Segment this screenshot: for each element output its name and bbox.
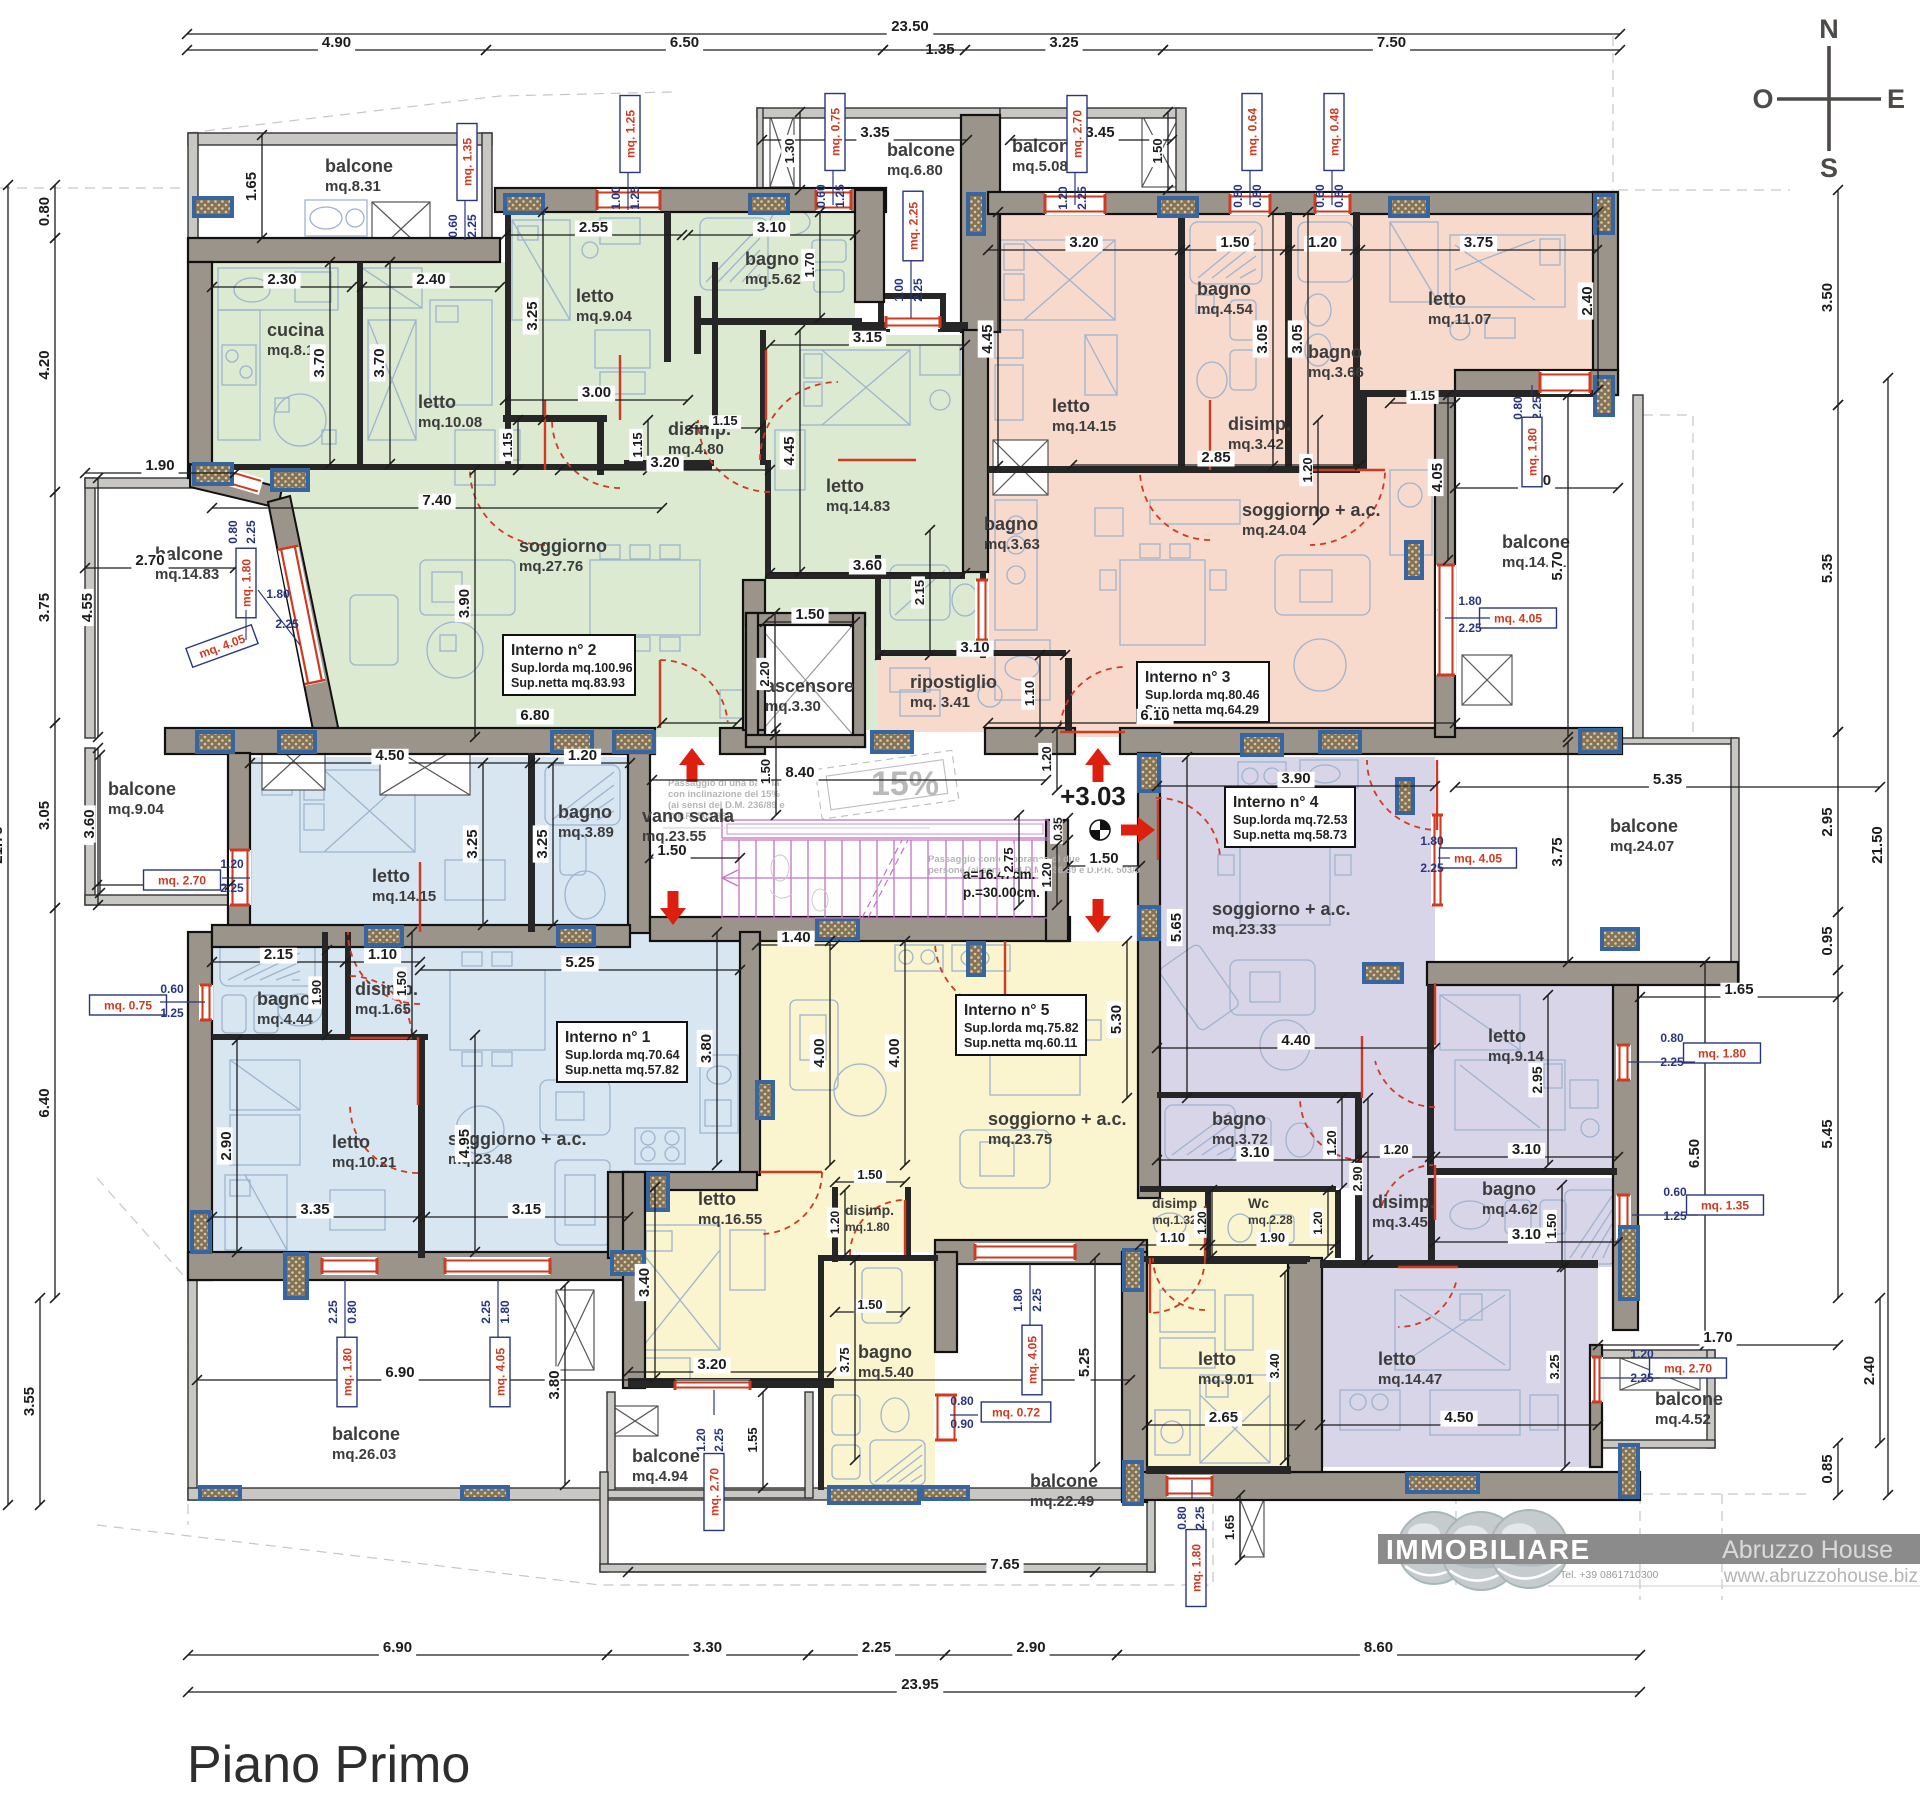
svg-text:bagno: bagno <box>745 249 799 269</box>
svg-text:2.25: 2.25 <box>911 278 925 302</box>
svg-text:mq.11.07: mq.11.07 <box>1428 311 1491 328</box>
svg-text:1.20: 1.20 <box>694 1428 708 1452</box>
svg-text:1.50: 1.50 <box>1220 234 1249 251</box>
svg-text:3.80: 3.80 <box>546 1370 563 1399</box>
svg-text:2.30: 2.30 <box>267 271 296 288</box>
svg-text:3.25: 3.25 <box>1547 1354 1562 1379</box>
svg-text:balcone: balcone <box>1655 1389 1723 1409</box>
svg-text:1.20: 1.20 <box>220 857 244 871</box>
svg-text:letto: letto <box>1428 289 1466 309</box>
svg-text:Sup.lorda mq.72.53: Sup.lorda mq.72.53 <box>1233 813 1348 827</box>
svg-text:mq.14.15: mq.14.15 <box>372 888 436 905</box>
svg-text:4.50: 4.50 <box>1444 1409 1473 1426</box>
svg-text:letto: letto <box>576 286 614 306</box>
svg-text:soggiorno + a.c.: soggiorno + a.c. <box>988 1109 1127 1129</box>
svg-text:3.75: 3.75 <box>1464 234 1493 251</box>
svg-text:bagno: bagno <box>257 989 311 1009</box>
svg-text:mq. 2.70: mq. 2.70 <box>1070 110 1084 158</box>
svg-text:1.20: 1.20 <box>1195 1211 1209 1235</box>
svg-text:letto: letto <box>1052 396 1090 416</box>
svg-text:6.50: 6.50 <box>670 34 699 51</box>
svg-text:mq.26.03: mq.26.03 <box>332 1446 396 1463</box>
svg-text:3.10: 3.10 <box>757 219 786 236</box>
svg-text:2.25: 2.25 <box>1458 621 1482 635</box>
svg-text:Interno n° 2: Interno n° 2 <box>511 642 596 659</box>
svg-text:4.45: 4.45 <box>781 436 798 465</box>
svg-text:mq. 2.70: mq. 2.70 <box>707 1468 721 1516</box>
svg-text:letto: letto <box>1488 1026 1526 1046</box>
svg-text:Abruzzo House: Abruzzo House <box>1722 1536 1893 1564</box>
svg-text:mq. 1.80: mq. 1.80 <box>340 1348 354 1396</box>
svg-text:1.10: 1.10 <box>1022 681 1037 706</box>
svg-text:4.00: 4.00 <box>886 1038 903 1067</box>
svg-text:1.20: 1.20 <box>568 747 597 764</box>
svg-text:mq.5.40: mq.5.40 <box>858 1364 914 1381</box>
svg-text:mq.9.04: mq.9.04 <box>576 308 633 325</box>
svg-text:mq.4.94: mq.4.94 <box>632 1468 689 1485</box>
svg-text:IMMOBILIARE: IMMOBILIARE <box>1386 1534 1591 1565</box>
svg-text:disimp.: disimp. <box>1228 414 1291 434</box>
svg-text:1.50: 1.50 <box>657 842 686 859</box>
svg-text:mq.4.44: mq.4.44 <box>257 1011 314 1028</box>
svg-text:2.90: 2.90 <box>1350 1166 1365 1191</box>
svg-text:mq.3.30: mq.3.30 <box>765 698 821 715</box>
svg-text:E: E <box>1887 84 1905 114</box>
svg-text:3.60: 3.60 <box>81 809 98 838</box>
svg-text:Interno n° 1: Interno n° 1 <box>565 1029 651 1046</box>
svg-text:bagno: bagno <box>558 802 612 822</box>
svg-text:1.40: 1.40 <box>781 929 810 946</box>
svg-text:mq.23.75: mq.23.75 <box>988 1131 1052 1148</box>
svg-text:mq. 1.80: mq. 1.80 <box>239 559 253 607</box>
svg-text:1.90: 1.90 <box>145 457 174 474</box>
svg-text:2.25: 2.25 <box>1193 1506 1207 1530</box>
svg-text:mq.14.15: mq.14.15 <box>1052 418 1116 435</box>
svg-text:Sup.lorda mq.100.96: Sup.lorda mq.100.96 <box>511 661 633 675</box>
svg-text:2.25: 2.25 <box>712 1428 726 1452</box>
svg-text:0.80: 0.80 <box>1175 1506 1189 1530</box>
svg-text:2.75: 2.75 <box>1001 847 1016 872</box>
svg-text:3.10: 3.10 <box>1512 1141 1541 1158</box>
svg-text:2.25: 2.25 <box>1075 186 1089 210</box>
svg-text:3.70: 3.70 <box>371 348 388 377</box>
svg-text:1.20: 1.20 <box>1630 1347 1654 1361</box>
svg-text:1.50: 1.50 <box>1089 850 1118 867</box>
svg-text:3.75: 3.75 <box>36 593 53 622</box>
svg-text:1.15: 1.15 <box>712 413 737 428</box>
svg-text:balcone: balcone <box>108 779 176 799</box>
svg-text:2.65: 2.65 <box>1209 1409 1238 1426</box>
svg-text:mq.8.31: mq.8.31 <box>325 178 381 195</box>
svg-text:1.30: 1.30 <box>782 138 797 163</box>
svg-text:mq.6.80: mq.6.80 <box>887 162 943 179</box>
svg-text:mq.22.49: mq.22.49 <box>1030 1493 1094 1510</box>
svg-text:O: O <box>1752 84 1773 114</box>
svg-text:3.50: 3.50 <box>1819 283 1836 312</box>
svg-text:0.60: 0.60 <box>814 184 828 208</box>
svg-text:6.90: 6.90 <box>383 1639 412 1656</box>
svg-text:4.20: 4.20 <box>36 350 53 379</box>
svg-text:disimp.: disimp. <box>1372 1192 1435 1212</box>
svg-text:2.25: 2.25 <box>1420 861 1444 875</box>
svg-text:mq.1.80: mq.1.80 <box>845 1220 890 1234</box>
svg-text:2.25: 2.25 <box>326 1300 340 1324</box>
svg-text:1.80: 1.80 <box>1011 1288 1025 1312</box>
svg-text:mq. 1.80: mq. 1.80 <box>1698 1046 1746 1060</box>
svg-text:3.55: 3.55 <box>21 1387 38 1416</box>
svg-text:2.40: 2.40 <box>1579 286 1596 315</box>
svg-text:1.10: 1.10 <box>1160 1230 1185 1245</box>
svg-text:vano scala: vano scala <box>642 806 735 826</box>
svg-text:3.20: 3.20 <box>1069 234 1098 251</box>
svg-text:mq.4.52: mq.4.52 <box>1655 1411 1711 1428</box>
svg-text:1.15: 1.15 <box>500 432 515 457</box>
svg-text:balcone: balcone <box>632 1446 700 1466</box>
svg-text:1.65: 1.65 <box>243 172 260 201</box>
svg-text:0.80: 0.80 <box>1231 184 1245 208</box>
svg-text:Sup.netta mq.57.82: Sup.netta mq.57.82 <box>565 1063 679 1077</box>
svg-text:mq.4.62: mq.4.62 <box>1482 1201 1538 1218</box>
svg-text:1.50: 1.50 <box>1544 1213 1559 1238</box>
svg-text:mq. 0.75: mq. 0.75 <box>828 108 842 156</box>
svg-text:disimp: disimp <box>1152 1195 1197 1211</box>
svg-text:balcone: balcone <box>887 140 955 160</box>
svg-text:1.90: 1.90 <box>1260 1230 1285 1245</box>
svg-text:mq.5.08: mq.5.08 <box>1012 158 1068 175</box>
svg-text:6.10: 6.10 <box>1140 707 1169 724</box>
svg-text:letto: letto <box>698 1189 736 1209</box>
svg-text:3.60: 3.60 <box>853 557 882 574</box>
svg-text:1.80: 1.80 <box>498 1300 512 1324</box>
svg-text:2.90: 2.90 <box>218 1131 235 1160</box>
svg-text:bagno: bagno <box>1212 1109 1266 1129</box>
svg-text:mq.23.33: mq.23.33 <box>1212 921 1276 938</box>
svg-text:0.95: 0.95 <box>1819 926 1836 955</box>
svg-text:3.10: 3.10 <box>1240 1144 1269 1161</box>
svg-text:Sup.netta mq.58.73: Sup.netta mq.58.73 <box>1233 828 1347 842</box>
svg-text:Sup.netta mq.60.11: Sup.netta mq.60.11 <box>964 1036 1077 1050</box>
svg-text:2.95: 2.95 <box>1529 1066 1545 1093</box>
svg-text:4.00: 4.00 <box>811 1038 828 1067</box>
svg-text:4.90: 4.90 <box>322 34 351 51</box>
svg-text:mq.14.83: mq.14.83 <box>826 498 890 515</box>
svg-text:letto: letto <box>372 866 410 886</box>
svg-text:3.45: 3.45 <box>1085 124 1114 141</box>
svg-text:1.10: 1.10 <box>368 946 397 963</box>
svg-text:1.20: 1.20 <box>1311 1211 1325 1235</box>
svg-text:1.15: 1.15 <box>1410 388 1435 403</box>
svg-text:2.55: 2.55 <box>579 219 608 236</box>
svg-text:letto: letto <box>1198 1349 1236 1369</box>
svg-text:bagno: bagno <box>1308 342 1362 362</box>
svg-text:S: S <box>1820 153 1838 183</box>
svg-text:bagno: bagno <box>1197 279 1251 299</box>
svg-text:1.65: 1.65 <box>1222 1515 1237 1540</box>
svg-text:5.30: 5.30 <box>1108 1005 1125 1034</box>
svg-text:3.20: 3.20 <box>650 454 679 471</box>
svg-text:6.50: 6.50 <box>1686 1139 1703 1168</box>
svg-text:5.35: 5.35 <box>1653 771 1682 788</box>
svg-text:2.15: 2.15 <box>912 580 927 605</box>
svg-text:Interno n° 5: Interno n° 5 <box>964 1002 1050 1019</box>
svg-text:mq. 2.70: mq. 2.70 <box>158 873 206 887</box>
svg-text:Sup.netta mq.83.93: Sup.netta mq.83.93 <box>511 676 625 690</box>
svg-text:0.60: 0.60 <box>446 214 460 238</box>
svg-text:mq.27.76: mq.27.76 <box>519 558 583 575</box>
svg-text:0.60: 0.60 <box>1313 184 1327 208</box>
svg-text:Sup.lorda mq.75.82: Sup.lorda mq.75.82 <box>964 1021 1079 1035</box>
svg-text:21.50: 21.50 <box>1869 826 1886 864</box>
svg-text:0.35: 0.35 <box>1051 817 1065 841</box>
svg-text:mq.3.42: mq.3.42 <box>1228 436 1284 453</box>
svg-text:4.40: 4.40 <box>1281 1032 1310 1049</box>
svg-text:mq. 4.05: mq. 4.05 <box>1454 851 1502 865</box>
svg-text:mq. 4.05: mq. 4.05 <box>1494 611 1542 625</box>
svg-text:2.40: 2.40 <box>1861 1356 1878 1385</box>
svg-text:2.25: 2.25 <box>862 1639 891 1656</box>
svg-text:letto: letto <box>332 1132 370 1152</box>
svg-text:+3.03: +3.03 <box>1060 781 1126 811</box>
svg-text:1.50: 1.50 <box>758 759 773 784</box>
svg-text:1.25: 1.25 <box>1663 1209 1687 1223</box>
svg-text:4.55: 4.55 <box>79 593 96 622</box>
svg-text:6.80: 6.80 <box>520 707 549 724</box>
svg-text:2.70: 2.70 <box>135 552 164 569</box>
svg-text:3.75: 3.75 <box>1549 837 1566 866</box>
svg-text:3.10: 3.10 <box>1512 1226 1541 1243</box>
svg-text:mq. 3.41: mq. 3.41 <box>910 694 970 711</box>
svg-text:3.35: 3.35 <box>300 1201 329 1218</box>
svg-text:mq. 2.25: mq. 2.25 <box>906 202 920 250</box>
svg-text:1.65: 1.65 <box>1724 981 1753 998</box>
svg-text:1.35: 1.35 <box>925 41 954 58</box>
svg-text:letto: letto <box>1378 1349 1416 1369</box>
svg-text:0.85: 0.85 <box>1819 1454 1836 1483</box>
svg-text:2.15: 2.15 <box>264 946 293 963</box>
svg-text:4.45: 4.45 <box>979 324 996 353</box>
svg-text:2.25: 2.25 <box>465 214 479 238</box>
svg-text:23.95: 23.95 <box>901 1676 939 1693</box>
svg-text:Wc: Wc <box>1248 1195 1269 1211</box>
svg-text:mq. 1.25: mq. 1.25 <box>623 110 637 158</box>
svg-text:6.90: 6.90 <box>385 1364 414 1381</box>
svg-text:Sup.lorda mq.80.46: Sup.lorda mq.80.46 <box>1145 688 1260 702</box>
svg-text:1.15: 1.15 <box>630 432 645 457</box>
svg-text:7.50: 7.50 <box>1377 34 1406 51</box>
svg-text:mq.1.32: mq.1.32 <box>1152 1213 1197 1227</box>
svg-text:3.25: 3.25 <box>464 829 481 858</box>
svg-text:ascensore: ascensore <box>765 676 854 696</box>
svg-text:1.50: 1.50 <box>857 1167 882 1182</box>
svg-text:8.40: 8.40 <box>785 764 814 781</box>
svg-text:3.00: 3.00 <box>582 384 611 401</box>
svg-text:www.abruzzohouse.biz: www.abruzzohouse.biz <box>1723 1566 1918 1587</box>
svg-text:1.20: 1.20 <box>1039 746 1054 771</box>
svg-text:2.85: 2.85 <box>1201 449 1230 466</box>
svg-text:23.50: 23.50 <box>891 18 929 35</box>
svg-text:1.25: 1.25 <box>628 186 642 210</box>
svg-text:mq.24.07: mq.24.07 <box>1610 838 1674 855</box>
svg-text:4.50: 4.50 <box>375 747 404 764</box>
svg-text:1.50: 1.50 <box>857 1297 882 1312</box>
svg-text:1.80: 1.80 <box>1458 594 1482 608</box>
svg-text:bagno: bagno <box>858 1342 912 1362</box>
svg-text:0.80: 0.80 <box>1250 184 1264 208</box>
svg-text:3.05: 3.05 <box>1254 324 1271 353</box>
svg-text:0.80: 0.80 <box>345 1300 359 1324</box>
svg-text:1.50: 1.50 <box>795 606 824 623</box>
svg-text:1.90: 1.90 <box>309 980 324 1005</box>
svg-text:1.50: 1.50 <box>394 971 409 996</box>
svg-text:mq. 0.64: mq. 0.64 <box>1245 108 1259 156</box>
svg-text:mq.24.04: mq.24.04 <box>1242 522 1307 539</box>
svg-text:5.25: 5.25 <box>565 954 594 971</box>
svg-text:0.80: 0.80 <box>36 197 53 226</box>
svg-text:2.95: 2.95 <box>1819 807 1836 836</box>
svg-text:2.90: 2.90 <box>1016 1639 1045 1656</box>
svg-text:con inclinazione del 15%: con inclinazione del 15% <box>668 789 780 800</box>
svg-text:1.00: 1.00 <box>892 278 906 302</box>
svg-text:N: N <box>1819 14 1839 44</box>
svg-text:7.65: 7.65 <box>990 1556 1019 1573</box>
svg-text:1.80: 1.80 <box>266 587 290 601</box>
svg-text:mq.16.55: mq.16.55 <box>698 1211 762 1228</box>
svg-text:1.20: 1.20 <box>1300 457 1315 482</box>
svg-text:soggiorno + a.c.: soggiorno + a.c. <box>1212 899 1351 919</box>
svg-text:3.20: 3.20 <box>697 1356 726 1373</box>
svg-text:8.60: 8.60 <box>1364 1639 1393 1656</box>
svg-text:0.60: 0.60 <box>160 982 184 996</box>
svg-text:mq.4.54: mq.4.54 <box>1197 301 1254 318</box>
svg-text:mq. 1.35: mq. 1.35 <box>460 138 474 186</box>
svg-text:mq. 1.35: mq. 1.35 <box>1701 1198 1749 1212</box>
svg-text:3.25: 3.25 <box>1049 34 1078 51</box>
svg-text:1.80: 1.80 <box>1420 834 1444 848</box>
svg-text:mq.2.28: mq.2.28 <box>1248 1213 1293 1227</box>
svg-text:mq.9.01: mq.9.01 <box>1198 1371 1254 1388</box>
svg-text:balcone: balcone <box>1030 1471 1098 1491</box>
svg-text:15%: 15% <box>871 765 939 803</box>
svg-text:p.=30.00cm.: p.=30.00cm. <box>963 885 1040 900</box>
svg-text:balcone: balcone <box>1610 816 1678 836</box>
svg-text:mq. 0.72: mq. 0.72 <box>992 1405 1040 1419</box>
svg-text:2.25: 2.25 <box>244 520 258 544</box>
svg-text:3.40: 3.40 <box>1267 1353 1282 1378</box>
svg-text:mq.14.47: mq.14.47 <box>1378 1371 1442 1388</box>
svg-text:3.70: 3.70 <box>311 348 328 377</box>
svg-text:1.20: 1.20 <box>1324 1130 1339 1155</box>
svg-text:5.35: 5.35 <box>1819 554 1836 583</box>
svg-text:1.55: 1.55 <box>745 1427 760 1452</box>
svg-text:mq. 0.75: mq. 0.75 <box>104 998 152 1012</box>
svg-text:1.50: 1.50 <box>1150 138 1165 163</box>
svg-text:3.15: 3.15 <box>512 1201 541 1218</box>
svg-text:3.35: 3.35 <box>860 124 889 141</box>
svg-text:1.20: 1.20 <box>1039 862 1054 887</box>
svg-text:Interno n° 3: Interno n° 3 <box>1145 669 1231 686</box>
svg-text:3.25: 3.25 <box>534 829 551 858</box>
svg-text:0.80: 0.80 <box>226 520 240 544</box>
svg-text:1.20: 1.20 <box>1308 234 1337 251</box>
svg-text:mq. 4.05: mq. 4.05 <box>493 1348 507 1396</box>
svg-text:soggiorno: soggiorno <box>519 536 607 556</box>
svg-text:1.70: 1.70 <box>1703 1329 1732 1346</box>
svg-text:2.25: 2.25 <box>1530 396 1544 420</box>
svg-text:mq.3.63: mq.3.63 <box>984 536 1040 553</box>
svg-text:5.65: 5.65 <box>1168 913 1185 942</box>
svg-text:soggiorno + a.c.: soggiorno + a.c. <box>1242 500 1381 520</box>
svg-text:ripostiglio: ripostiglio <box>910 672 997 692</box>
svg-text:mq.3.45: mq.3.45 <box>1372 1214 1428 1231</box>
svg-text:2.20: 2.20 <box>757 661 772 686</box>
svg-text:mq.5.62: mq.5.62 <box>745 271 801 288</box>
svg-text:mq. 2.70: mq. 2.70 <box>1664 1361 1712 1375</box>
svg-text:bagno: bagno <box>984 514 1038 534</box>
svg-text:3.90: 3.90 <box>1281 770 1310 787</box>
svg-text:mq. 1.80: mq. 1.80 <box>1525 428 1539 476</box>
svg-text:a=16.47cm.: a=16.47cm. <box>963 867 1035 882</box>
svg-text:3.25: 3.25 <box>524 301 541 330</box>
svg-text:1.20: 1.20 <box>1056 186 1070 210</box>
svg-text:3.40: 3.40 <box>636 1268 653 1297</box>
svg-text:4.95: 4.95 <box>456 1129 473 1158</box>
svg-text:0.90: 0.90 <box>950 1417 974 1431</box>
svg-text:0.80: 0.80 <box>1660 1031 1684 1045</box>
svg-text:2.25: 2.25 <box>1030 1288 1044 1312</box>
svg-text:bagno: bagno <box>1482 1179 1536 1199</box>
svg-text:5.70: 5.70 <box>1549 551 1566 580</box>
svg-text:1.25: 1.25 <box>833 184 847 208</box>
svg-text:0.60: 0.60 <box>1663 1185 1687 1199</box>
svg-text:1.20: 1.20 <box>828 1210 842 1234</box>
svg-text:mq.3.89: mq.3.89 <box>558 824 614 841</box>
svg-text:Interno n° 4: Interno n° 4 <box>1233 794 1319 811</box>
svg-text:3.05: 3.05 <box>1289 324 1306 353</box>
svg-text:3.10: 3.10 <box>960 639 989 656</box>
svg-text:mq.10.08: mq.10.08 <box>418 414 482 431</box>
svg-text:3.05: 3.05 <box>36 801 53 830</box>
svg-text:7.40: 7.40 <box>422 492 451 509</box>
svg-text:balcone: balcone <box>332 1424 400 1444</box>
svg-text:3.30: 3.30 <box>693 1639 722 1656</box>
svg-text:1.00: 1.00 <box>609 186 623 210</box>
svg-text:letto: letto <box>826 476 864 496</box>
svg-text:2.25: 2.25 <box>220 881 244 895</box>
svg-text:3.80: 3.80 <box>698 1034 715 1063</box>
svg-text:cucina: cucina <box>267 320 325 340</box>
svg-text:mq. 0.48: mq. 0.48 <box>1327 108 1341 156</box>
svg-text:mq.3.66: mq.3.66 <box>1308 364 1364 381</box>
svg-text:mq.1.65: mq.1.65 <box>355 1001 411 1018</box>
svg-text:3.15: 3.15 <box>853 329 882 346</box>
svg-text:4.05: 4.05 <box>1429 463 1446 492</box>
svg-text:balcone: balcone <box>325 156 393 176</box>
svg-text:2.40: 2.40 <box>416 271 445 288</box>
svg-text:5.45: 5.45 <box>1819 1119 1836 1148</box>
svg-text:3.90: 3.90 <box>456 589 473 618</box>
svg-text:1.20: 1.20 <box>1383 1142 1408 1157</box>
svg-text:mq.10.21: mq.10.21 <box>332 1154 396 1171</box>
svg-text:1.25: 1.25 <box>160 1006 184 1020</box>
svg-text:2.25: 2.25 <box>479 1300 493 1324</box>
svg-text:0.80: 0.80 <box>1511 396 1525 420</box>
svg-text:Sup.lorda mq.70.64: Sup.lorda mq.70.64 <box>565 1048 680 1062</box>
svg-text:6.40: 6.40 <box>36 1088 53 1117</box>
svg-text:5.25: 5.25 <box>1076 1348 1093 1377</box>
svg-text:Piano Primo: Piano Primo <box>187 1736 470 1794</box>
svg-text:0.80: 0.80 <box>950 1394 974 1408</box>
svg-text:mq. 1.80: mq. 1.80 <box>1189 1544 1203 1592</box>
